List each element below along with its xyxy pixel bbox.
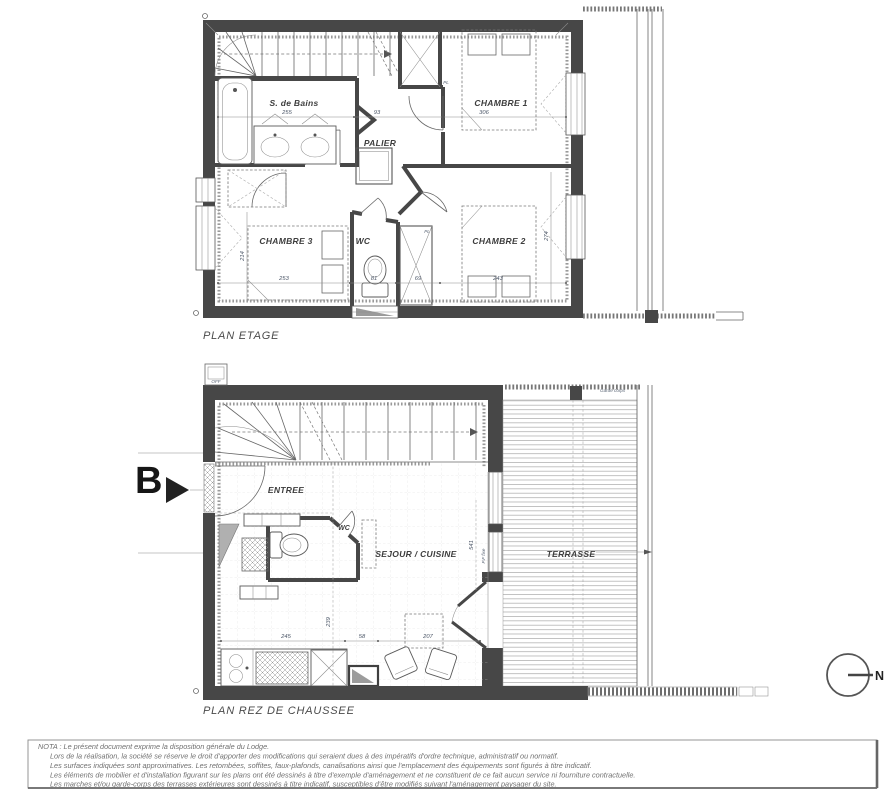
room-label-bath: S. de Bains <box>269 98 318 108</box>
stairs-etage <box>215 32 400 79</box>
closet-label-1: PL <box>443 80 449 85</box>
wall-bottom-rdc <box>203 686 588 700</box>
dim-chambre3-width: 253 <box>278 276 289 282</box>
bed-chambre2 <box>462 206 536 302</box>
dim-bay-height: 541 <box>469 540 475 550</box>
dim-wc-width: 81 <box>371 276 377 282</box>
dim-palier-width: 93 <box>374 110 381 116</box>
wall-right-upper-rdc <box>488 400 503 472</box>
double-washbasin <box>254 114 336 164</box>
off-label: OFF <box>211 379 221 384</box>
dim-mid-width: 58 <box>359 634 366 640</box>
plan-etage-title: PLAN ETAGE <box>203 330 279 342</box>
side-cabinet <box>240 586 278 599</box>
bed-chambre1 <box>462 30 536 130</box>
dim-bath-width: 255 <box>281 110 292 116</box>
technical-shaft <box>242 538 268 571</box>
kitchen-counter <box>221 649 347 686</box>
nota-line-5: Les marches et/ou garde-corps des terras… <box>50 780 557 789</box>
room-label-chambre1: CHAMBRE 1 <box>474 98 527 108</box>
room-label-palier: PALIER <box>364 138 397 148</box>
plan-rdc-title: PLAN REZ DE CHAUSSEE <box>203 705 355 717</box>
interior-walls-etage <box>215 32 571 306</box>
room-label-wc-etage: WC <box>356 236 371 246</box>
nota-line-2: Lors de la réalisation, la société se ré… <box>50 752 559 761</box>
room-label-entree: ENTREE <box>268 485 304 495</box>
closet-pl-chambre2 <box>400 226 432 305</box>
exterior-walls-etage <box>203 20 583 318</box>
room-label-terrasse: TERRASSE <box>547 549 596 559</box>
nota-line-3: Les surfaces indiquées sont approximativ… <box>50 761 592 770</box>
room-label-wc-rdc: WC <box>338 525 351 532</box>
off-box: OFF <box>205 364 227 385</box>
marker-b-arrow-icon <box>166 477 189 503</box>
dim-dining-width: 207 <box>422 634 433 640</box>
wc-window <box>352 306 398 318</box>
palier-skylight <box>356 148 392 184</box>
dim-chambre3-height: 214 <box>240 251 246 262</box>
nota-line-1: NOTA : Le présent document exprime la di… <box>38 742 269 751</box>
nota-box: NOTA : Le présent document exprime la di… <box>28 740 877 789</box>
dim-chambre2-height: 274 <box>544 231 550 242</box>
dim-closet-width: 69 <box>415 276 422 282</box>
closet-label-2: PL <box>424 229 430 234</box>
dim-depth: 239 <box>326 616 332 627</box>
pf-fixe-label: P.F fixe <box>481 548 486 563</box>
marker-b-label: B <box>135 460 162 502</box>
terrace-post <box>570 386 582 400</box>
toilet-bowl-rdc <box>280 534 308 556</box>
floor-plan-drawing: 255 93 306 253 81 69 243 214 274 S. de B… <box>0 0 887 800</box>
plan-etage: 255 93 306 253 81 69 243 214 274 S. de B… <box>194 9 744 323</box>
floor-plan-page: 255 93 306 253 81 69 243 214 274 S. de B… <box>0 0 887 800</box>
entry-cabinet <box>244 514 300 526</box>
wall-left-upper-rdc <box>203 385 215 462</box>
dim-chambre2-width: 243 <box>492 276 503 282</box>
kitchen-door-box <box>349 666 378 686</box>
bathtub <box>218 78 252 164</box>
wall-left-lower-rdc <box>203 513 215 688</box>
drain-mark-bottom <box>194 311 199 316</box>
stairs-rdc <box>215 402 488 464</box>
closet-pl-top <box>400 32 440 87</box>
north-arrow: N <box>827 654 884 696</box>
balcony-lines-etage <box>583 9 743 323</box>
nota-line-4: Les éléments de mobilier et d'installati… <box>50 771 635 780</box>
wall-top-rdc <box>203 385 503 400</box>
room-label-chambre2: CHAMBRE 2 <box>472 236 525 246</box>
room-label-chambre3: CHAMBRE 3 <box>259 236 312 246</box>
plan-rdc: P.F fixe Garde corps 245 58 207 239 541 … <box>138 364 768 700</box>
wall-right-post <box>488 524 503 532</box>
section-marker-b: B <box>135 460 189 503</box>
terrace-decking <box>503 400 637 686</box>
north-label: N <box>875 669 884 683</box>
closet-chambre3 <box>228 170 286 207</box>
cooktop <box>256 652 308 684</box>
dim-kitchen-width: 245 <box>280 634 291 640</box>
dim-chambre1-width: 306 <box>479 110 489 116</box>
room-label-sejour: SEJOUR / CUISINE <box>375 549 456 559</box>
garde-corps-label: Garde corps <box>600 388 626 393</box>
drain-mark-top <box>203 14 208 19</box>
